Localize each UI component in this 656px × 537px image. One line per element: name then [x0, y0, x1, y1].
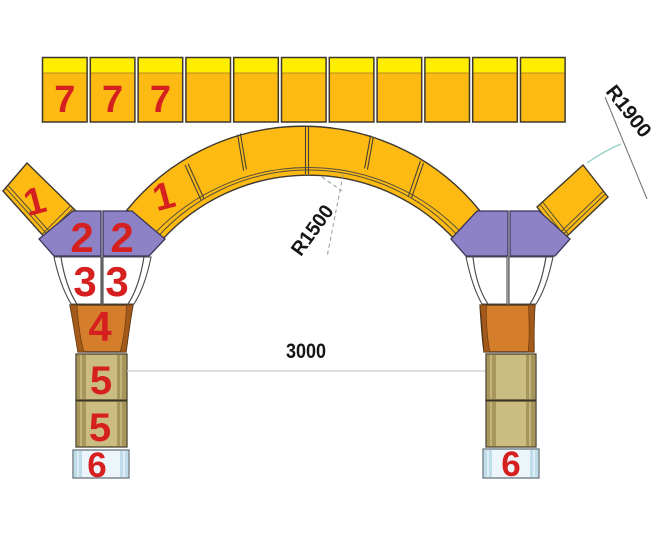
block-body: [521, 73, 566, 122]
label-5-b: 5: [89, 406, 111, 450]
block-top-strip: [282, 58, 327, 74]
span-dimension-text: 3000: [286, 340, 326, 363]
block-body: [473, 73, 518, 122]
top-row-block: [473, 58, 518, 123]
label-6-right: 6: [501, 445, 520, 484]
block-top-strip: [43, 58, 88, 74]
label-5-a: 5: [90, 359, 112, 403]
top-row-label: 7: [102, 79, 123, 121]
label-6-left: 6: [87, 446, 106, 485]
block-body: [329, 73, 374, 122]
block-top-strip: [186, 58, 231, 74]
block-top-strip: [473, 58, 518, 74]
right-tan-block-1: [486, 354, 536, 400]
label-4: 4: [88, 303, 112, 350]
block-body: [282, 73, 327, 122]
top-row-block: [377, 58, 422, 123]
label-2-b: 2: [110, 214, 133, 261]
drawing-canvas: 777: [0, 0, 656, 537]
top-row-block: [186, 58, 231, 123]
label-3-a: 3: [73, 258, 96, 305]
block-top-strip: [377, 58, 422, 74]
block-top-strip: [138, 58, 183, 74]
top-row-block: 7: [43, 58, 88, 123]
right-column: [451, 211, 570, 478]
label-2-a: 2: [70, 214, 93, 261]
top-row-block: [234, 58, 279, 123]
block-top-strip: [90, 58, 135, 74]
right-orange-band-r: [528, 305, 535, 352]
top-row-block: [329, 58, 374, 123]
top-row-label: 7: [150, 79, 171, 121]
top-row-block: [521, 58, 566, 123]
top-row-block: [282, 58, 327, 123]
block-top-strip: [521, 58, 566, 74]
top-row-block: 7: [138, 58, 183, 123]
outer-radius-text: R1900: [601, 81, 655, 142]
block-body: [377, 73, 422, 122]
top-row-block: [425, 58, 470, 123]
top-row: 777: [43, 58, 566, 123]
arch-assembly-drawing: 777: [0, 0, 656, 537]
block-top-strip: [329, 58, 374, 74]
right-tan-block-2: [486, 401, 536, 447]
label-3-b: 3: [105, 258, 128, 305]
top-row-block: 7: [90, 58, 135, 123]
block-body: [234, 73, 279, 122]
inner-radius-text: R1500: [287, 201, 338, 260]
r1900-leader-curve: [587, 144, 621, 163]
block-top-strip: [234, 58, 279, 74]
top-row-label: 7: [54, 79, 75, 121]
block-top-strip: [425, 58, 470, 74]
block-body: [186, 73, 231, 122]
block-body: [425, 73, 470, 122]
